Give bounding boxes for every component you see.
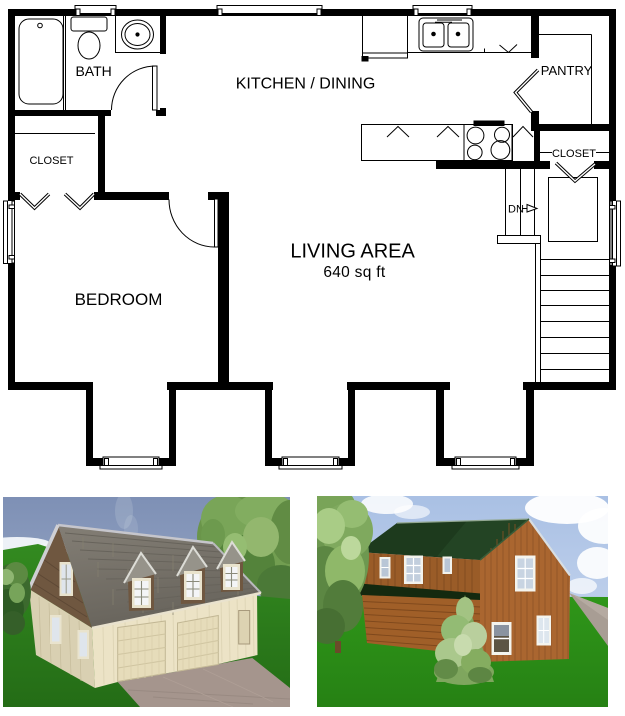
svg-text:CLOSET: CLOSET [552,148,596,160]
svg-text:LIVING AREA: LIVING AREA [290,241,415,263]
svg-text:640 sq ft: 640 sq ft [323,264,386,281]
svg-text:BEDROOM: BEDROOM [75,290,163,309]
svg-text:PANTRY: PANTRY [541,63,593,78]
svg-text:BATH: BATH [75,63,111,79]
svg-text:KITCHEN / DINING: KITCHEN / DINING [236,76,376,93]
svg-text:CLOSET: CLOSET [29,155,73,167]
svg-text:DN: DN [508,204,524,216]
